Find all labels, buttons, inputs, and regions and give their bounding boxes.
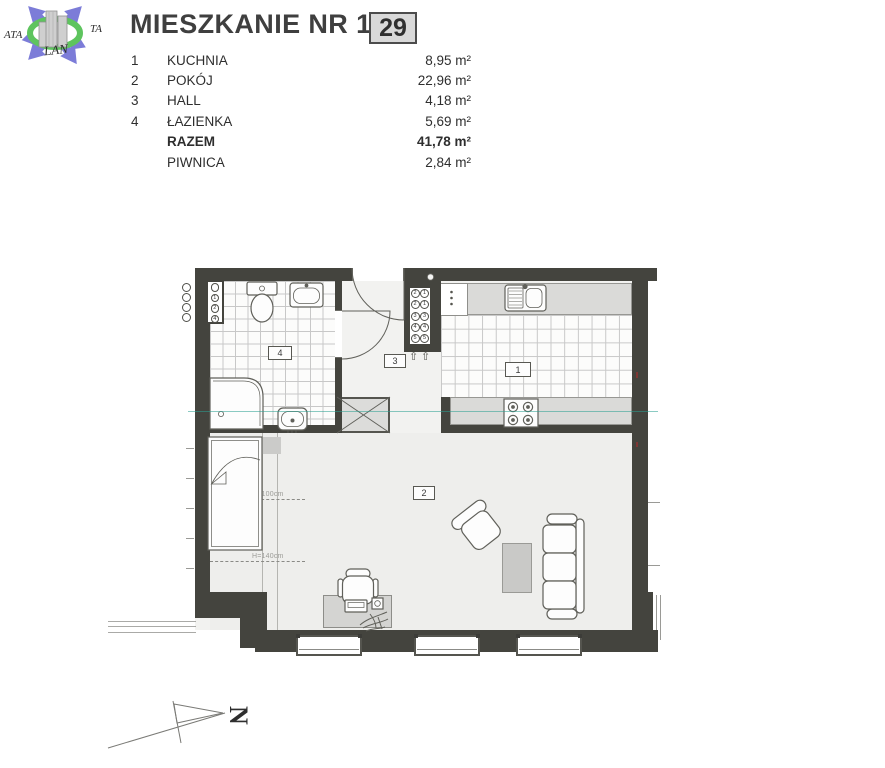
terrace-edge-line [108, 621, 196, 622]
unit-number-badge: 29 [369, 12, 417, 44]
window-hinge [414, 634, 418, 638]
room-label-living: 2 [413, 486, 435, 500]
window [516, 635, 582, 656]
laptop [345, 600, 367, 612]
washbasin [290, 283, 323, 307]
room-number: 2 [131, 73, 167, 88]
scan-artifact [636, 372, 638, 378]
room-label-bathroom: 4 [268, 346, 292, 360]
window-hinge [516, 634, 520, 638]
scan-artifact [636, 442, 638, 447]
north-arrow-line [108, 713, 225, 748]
room-area: 22,96 m² [361, 73, 471, 88]
developer-logo: ATA TA LAN [2, 2, 110, 68]
sofa [543, 514, 584, 619]
table-row: 1 KUCHNIA 8,95 m² [131, 50, 471, 70]
room-area-table: 1 KUCHNIA 8,95 m² 2 POKÓJ 22,96 m² 3 HAL… [131, 50, 471, 172]
room-name: ŁAZIENKA [167, 114, 361, 129]
north-letter: N [224, 706, 253, 725]
room-area: 4,18 m² [361, 93, 471, 108]
page-title: MIESZKANIE NR 1/5 [130, 9, 395, 40]
window-hinge [296, 634, 300, 638]
wardrobe-cross [337, 397, 390, 433]
north-arrow: N [98, 692, 268, 762]
room-area: 8,95 m² [361, 53, 471, 68]
table-row: 4 ŁAZIENKA 5,69 m² [131, 111, 471, 131]
window-frame-line [417, 649, 477, 650]
cabinet-knob [427, 274, 433, 280]
stove [504, 399, 538, 427]
window [414, 635, 480, 656]
toilet [247, 282, 277, 322]
terrace-edge-line [108, 626, 196, 627]
window-frame-line [299, 649, 359, 650]
room-area: 41,78 m² [361, 134, 471, 149]
window-hinge [476, 634, 480, 638]
window-hinge [578, 634, 582, 638]
table-row: 3 HALL 4,18 m² [131, 91, 471, 111]
scan-artifact-line [188, 411, 658, 412]
room-label-kitchen: 1 [505, 362, 531, 377]
room-area: 2,84 m² [361, 155, 471, 170]
logo-text-right: TA [90, 23, 102, 35]
window-hinge [358, 634, 362, 638]
table-row-cellar: PIWNICA 2,84 m² [131, 152, 471, 172]
fridge-dots [450, 291, 453, 306]
room-label-hall: 3 [384, 354, 406, 368]
room-name: PIWNICA [167, 155, 361, 170]
north-arrow-flag [174, 704, 223, 723]
room-name: RAZEM [167, 134, 361, 149]
armchair [449, 498, 506, 555]
room-name: KUCHNIA [167, 53, 361, 68]
logo-text-left: ATA [3, 29, 23, 41]
window-frame-line [519, 649, 579, 650]
room-number: 4 [131, 114, 167, 129]
room-name: HALL [167, 93, 361, 108]
floor-plan: H=100cm H=140cm 2 1 2 1 3 3 [180, 262, 665, 667]
bed [208, 437, 262, 550]
room-number: 1 [131, 53, 167, 68]
scanned-floor-plan-page: ATA TA LAN MIESZKANIE NR 1/5 29 1 KUCHNI… [0, 0, 885, 768]
logo-text-bottom: LAN [42, 41, 70, 59]
desk-lamp [372, 598, 383, 609]
terrace-edge-line [108, 632, 196, 633]
plant [360, 612, 388, 631]
kitchen-sink [505, 285, 546, 312]
fixtures-drawing [180, 262, 665, 667]
room-number: 3 [131, 93, 167, 108]
entrance-door-swing [352, 268, 404, 320]
table-row: 2 POKÓJ 22,96 m² [131, 70, 471, 90]
bathroom-door-swing [342, 311, 390, 359]
room-area: 5,69 m² [361, 114, 471, 129]
room-name: POKÓJ [167, 73, 361, 88]
shower [210, 378, 263, 429]
table-row-total: RAZEM 41,78 m² [131, 132, 471, 152]
window [296, 635, 362, 656]
